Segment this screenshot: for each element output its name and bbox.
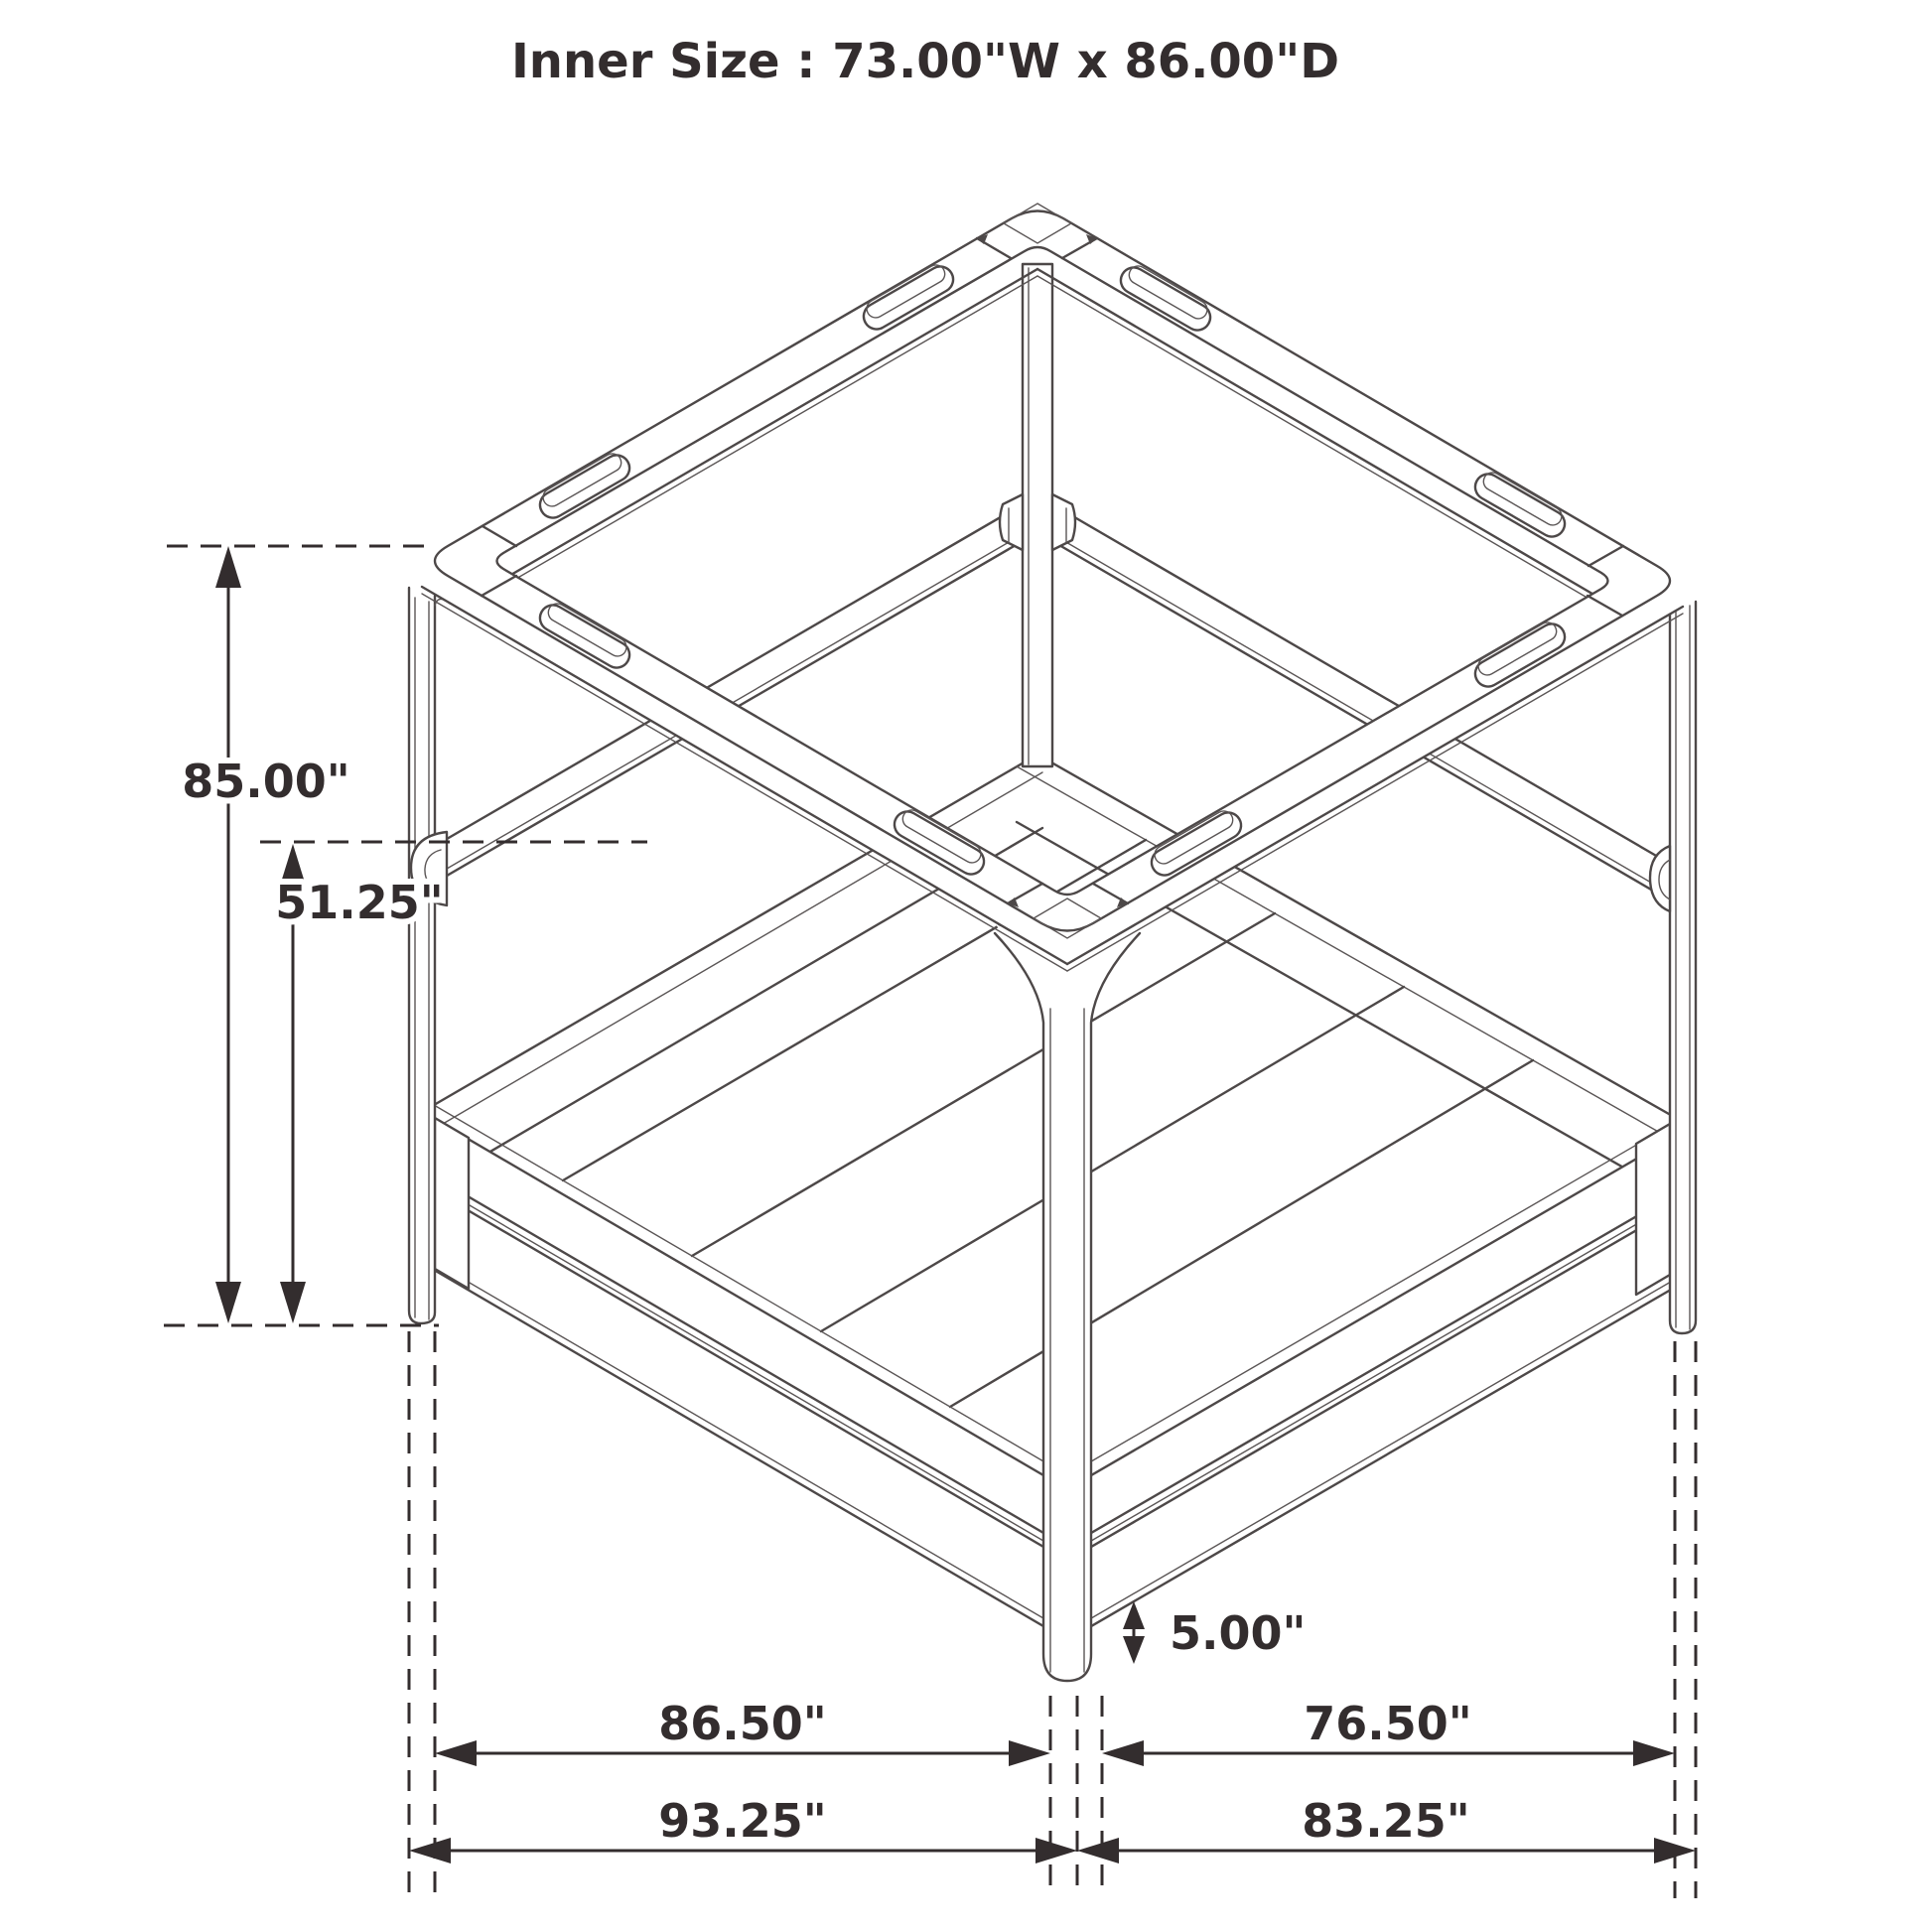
dim-span-inner-right-label: 76.50" xyxy=(1304,1697,1471,1750)
dim-clearance-label: 5.00" xyxy=(1170,1606,1306,1660)
dim-overall-height-label: 85.00" xyxy=(182,755,349,808)
dim-overall-height-arrow xyxy=(215,546,241,1323)
page-title: Inner Size : 73.00"W x 86.00"D xyxy=(511,34,1339,89)
dim-span-overall-left-label: 93.25" xyxy=(658,1794,826,1848)
dim-rail-height-label: 51.25" xyxy=(275,876,443,929)
fascia-end-block-right xyxy=(1636,1124,1670,1295)
canopy-bed-dimension-diagram: 85.00" 51.25" 5.00" 86.50" 76.50" 93.25"… xyxy=(0,0,1932,1932)
back-post xyxy=(1000,264,1075,766)
diagram-canvas: 85.00" 51.25" 5.00" 86.50" 76.50" 93.25"… xyxy=(0,0,1932,1932)
fascia-end-block-left xyxy=(435,1118,469,1289)
dim-span-overall-right-label: 83.25" xyxy=(1302,1794,1469,1848)
dim-span-inner-left-label: 86.50" xyxy=(658,1697,826,1750)
dim-clearance-arrow xyxy=(1123,1601,1145,1664)
